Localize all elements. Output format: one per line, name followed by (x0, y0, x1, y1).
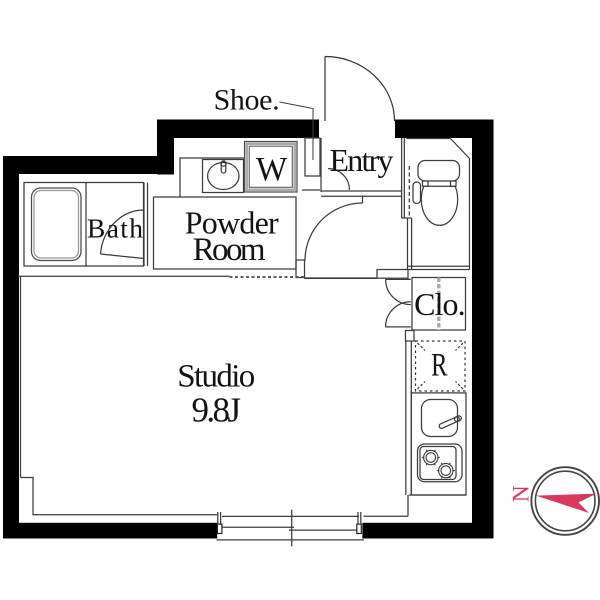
svg-text:Clo.: Clo. (414, 286, 466, 322)
svg-text:Room: Room (193, 232, 266, 268)
svg-text:Studio: Studio (177, 359, 255, 395)
svg-text:R: R (431, 347, 448, 383)
svg-text:W: W (256, 151, 288, 188)
svg-text:9.8J: 9.8J (192, 391, 242, 430)
svg-text:N: N (508, 485, 534, 502)
svg-text:Shoe.: Shoe. (214, 83, 280, 116)
svg-text:Bath: Bath (87, 213, 143, 244)
svg-text:Entry: Entry (330, 142, 394, 178)
